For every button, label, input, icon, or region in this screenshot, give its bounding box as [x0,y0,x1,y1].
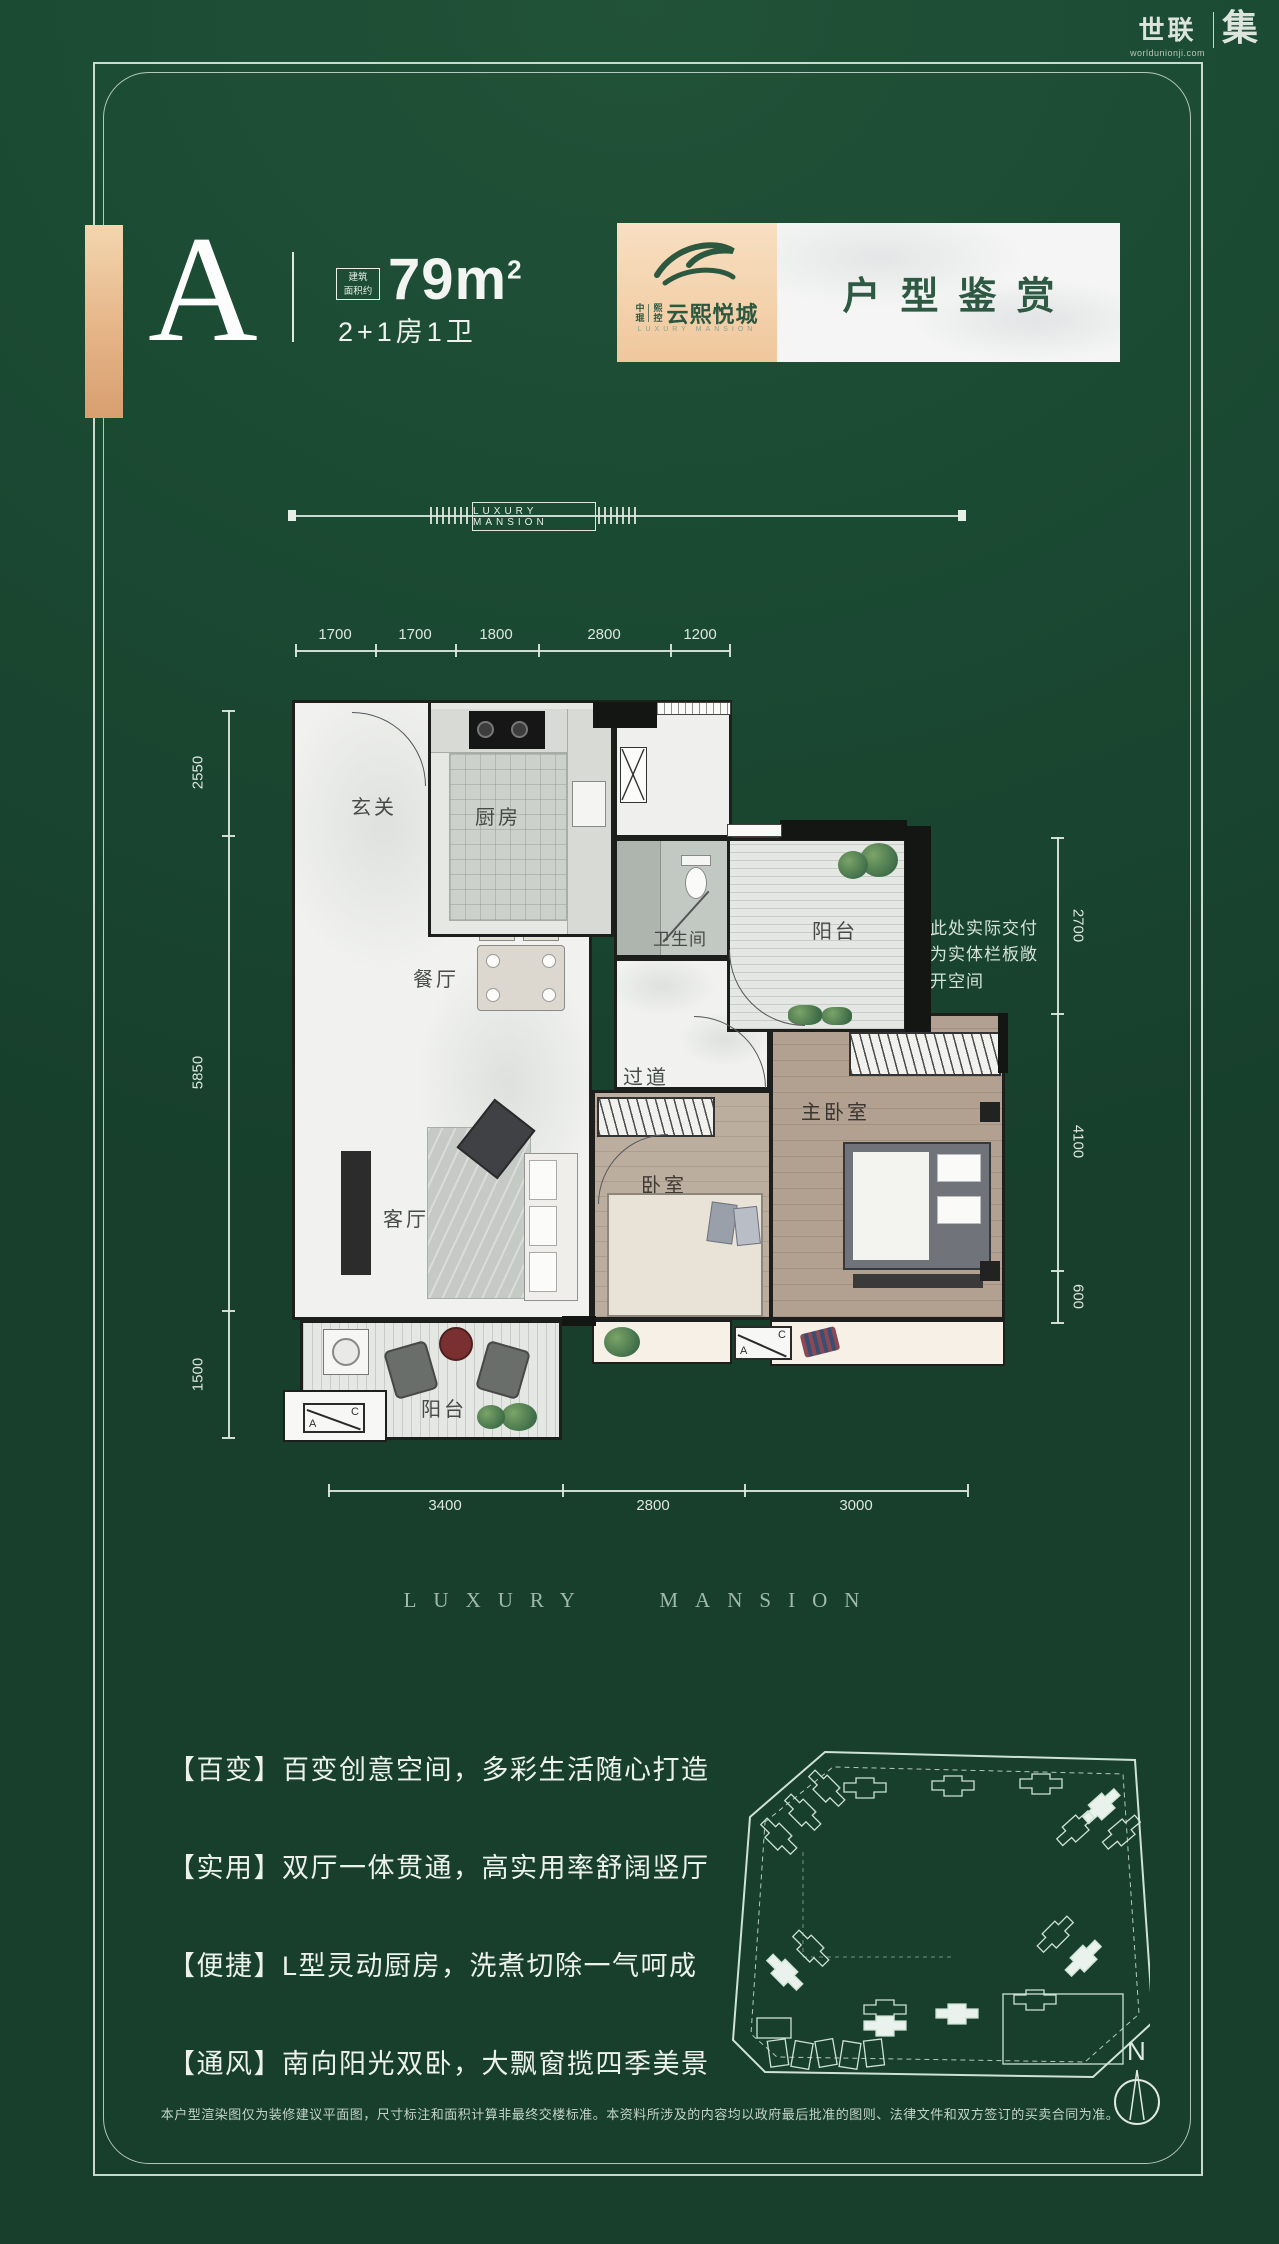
washer-door [332,1338,360,1366]
compass-n-label: N [1127,2036,1146,2066]
flue-shaft [620,747,647,803]
room-bedroom: 卧室 [592,1090,772,1320]
bay-cushion [800,1326,841,1358]
ac-unit-box: A C [734,1326,792,1360]
flue-cross-lines [621,748,645,801]
bed-duvet [853,1152,929,1260]
room-label-master: 主卧室 [801,1096,870,1125]
balcony-table [439,1327,473,1361]
room-bathroom: 卫生间 [614,838,732,958]
plant [822,1007,852,1025]
toilet-tank [681,855,711,866]
wall-segment [780,820,907,840]
room-label-dining: 餐厅 [413,963,459,992]
pillow [937,1196,981,1224]
window-band [727,824,782,837]
ac-letter-c: C [351,1406,359,1418]
room-label-balcony-top: 阳台 [812,915,858,944]
room-label-entry: 玄关 [351,791,397,820]
poster-page: 世联 worldunionji.com 集 A 建筑 面积约 79m2 2+1房… [0,0,1279,2244]
sofa [524,1153,578,1301]
feature-item: 【便捷】L型灵动厨房，洗煮切除一气呵成 [168,1944,698,1983]
wall-segment [593,702,657,728]
stove [469,711,545,749]
sofa-cushion [529,1160,557,1200]
room-label-balcony-bottom: 阳台 [421,1393,467,1422]
stove-burner [477,721,494,738]
window-band [649,702,731,715]
plant [501,1403,537,1431]
plant [838,851,868,879]
nightstand [980,1102,1000,1122]
room-master-bedroom: 主卧室 [770,1013,1005,1320]
master-bay-window [770,1320,1005,1366]
plant [604,1327,640,1357]
bedroom-wardrobe [597,1097,715,1137]
plate [486,988,500,1002]
wall-segment [998,1013,1008,1073]
ac-letter-a: A [740,1345,747,1357]
nightstand [980,1261,1000,1281]
kitchen-sink [572,781,606,827]
plant [477,1405,505,1429]
plate [486,954,500,968]
kitchen-floor-tile [449,753,567,921]
site-plan-boundary [733,1752,1150,2077]
tv-console [341,1151,371,1275]
site-plan-buildings [756,1767,1144,2070]
washing-machine [323,1329,369,1375]
bedroom-bay-window [592,1320,732,1364]
room-label-kitchen: 厨房 [475,801,521,830]
room-label-bath: 卫生间 [653,925,707,950]
room-kitchen: 厨房 [428,700,614,937]
master-bed [843,1142,991,1270]
ac-letter-a: A [309,1418,316,1430]
pillow [937,1154,981,1182]
pillow [733,1206,761,1246]
ac-unit-box: A C [303,1403,365,1433]
feature-item: 【通风】南向阳光双卧，大飘窗揽四季美景 [168,2042,710,2081]
disclaimer-text: 本户型渲染图仅为装修建议平面图，尺寸标注和面积计算非最终交楼标准。本资料所涉及的… [110,2104,1170,2123]
balcony-chair [383,1340,439,1400]
feature-item: 【百变】百变创意空间，多彩生活随心打造 [168,1748,710,1787]
sofa-cushion [529,1252,557,1292]
plate [542,954,556,968]
stove-burner [511,721,528,738]
plate [542,988,556,1002]
wall-segment [905,826,931,1032]
balcony-chair [475,1340,531,1400]
master-wardrobe [849,1032,1001,1076]
site-plan [705,1722,1150,2090]
feature-item: 【实用】双厅一体贯通，高实用率舒阔竖厅 [168,1846,710,1885]
ac-letter-c: C [778,1329,786,1341]
dining-table [477,945,565,1011]
wall-segment [562,1316,596,1326]
room-label-hallway: 过道 [623,1061,669,1090]
room-label-living: 客厅 [383,1203,429,1232]
bed-bench [853,1274,983,1288]
bedroom-bed [607,1193,763,1317]
sofa-cushion [529,1206,557,1246]
